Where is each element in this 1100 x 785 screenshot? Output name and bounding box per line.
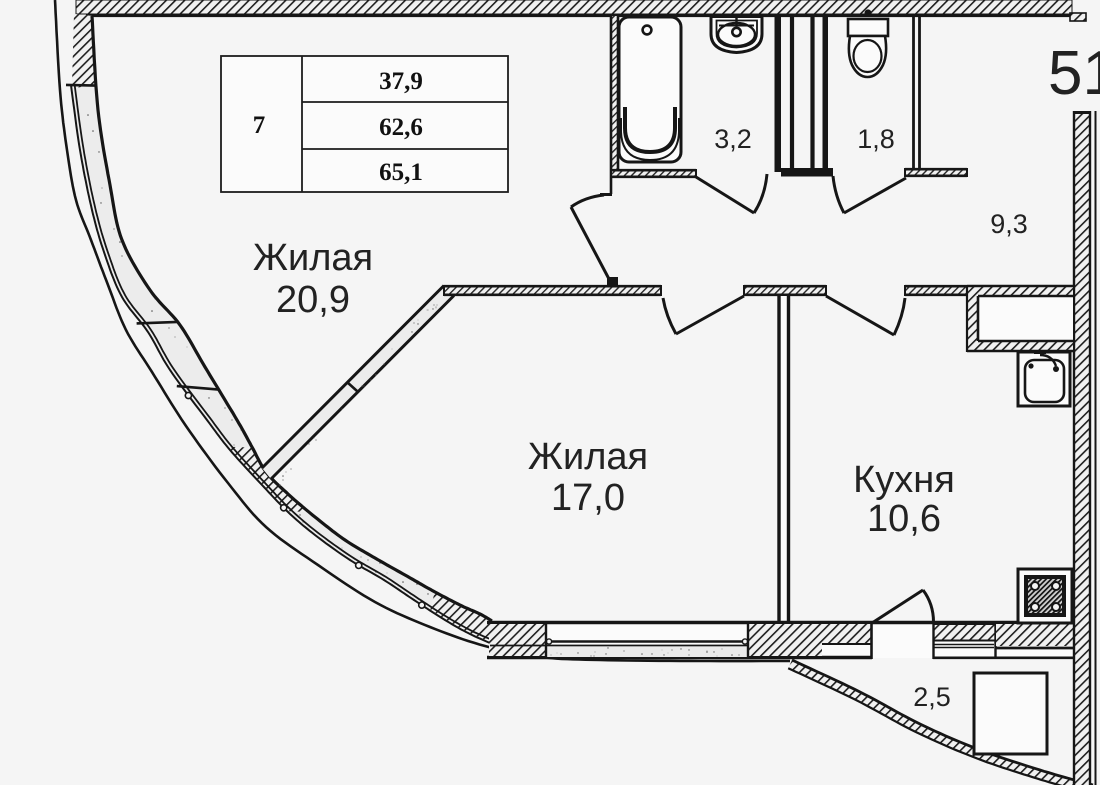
svg-text:1,8: 1,8 [857, 124, 895, 154]
svg-text:2,5: 2,5 [913, 682, 951, 712]
svg-text:62,6: 62,6 [379, 114, 423, 141]
svg-text:65,1: 65,1 [379, 159, 423, 186]
svg-text:7: 7 [253, 112, 266, 139]
svg-text:37,9: 37,9 [379, 68, 423, 95]
svg-text:17,0: 17,0 [551, 477, 625, 519]
svg-text:20,9: 20,9 [276, 279, 350, 321]
svg-text:Жилая: Жилая [253, 237, 373, 279]
svg-text:51: 51 [1048, 39, 1100, 108]
svg-text:Жилая: Жилая [528, 436, 648, 478]
svg-text:3,2: 3,2 [714, 124, 752, 154]
svg-text:9,3: 9,3 [990, 209, 1028, 239]
svg-text:Кухня: Кухня [853, 459, 955, 501]
svg-text:10,6: 10,6 [867, 498, 941, 540]
